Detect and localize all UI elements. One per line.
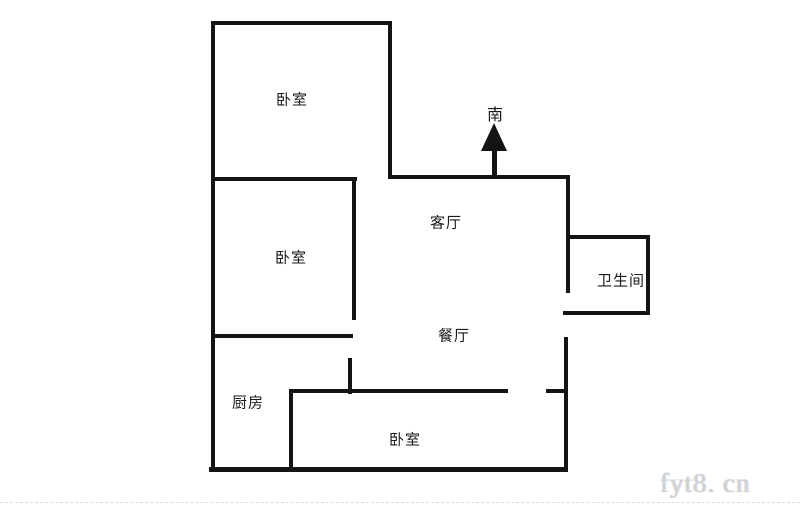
wall-outer-left <box>211 21 215 472</box>
room-label-bedroom-bottom: 卧室 <box>389 429 421 450</box>
wall-bedroom-middle-bottom <box>211 334 353 338</box>
wall-bedroom-bottom-left <box>289 389 293 470</box>
wall-right-upper <box>566 175 570 293</box>
room-label-kitchen: 厨房 <box>232 392 264 413</box>
south-arrow-icon <box>481 123 507 151</box>
wall-bedroom-middle-right <box>352 177 356 320</box>
room-label-bathroom: 卫生间 <box>597 270 645 291</box>
room-label-living-room: 客厅 <box>430 212 462 233</box>
wall-living-room-top <box>388 175 570 179</box>
wall-right-lower <box>564 337 568 472</box>
wall-bathroom-top <box>566 235 650 239</box>
wall-bedroom-bottom-top-left <box>289 389 508 393</box>
wall-outer-bottom <box>209 467 568 472</box>
floor-plan-canvas: 卧室 卧室 客厅 卫生间 餐厅 厨房 卧室 南 fyt8. cn <box>0 0 800 510</box>
room-label-bedroom-top: 卧室 <box>276 89 308 110</box>
room-label-bedroom-middle: 卧室 <box>275 247 307 268</box>
south-arrow-shaft <box>492 149 497 177</box>
wall-bedroom-divider <box>211 177 357 181</box>
watermark-text: fyt8. cn <box>660 468 750 499</box>
room-label-dining-room: 餐厅 <box>438 325 470 346</box>
wall-bedroom-top-right <box>388 21 392 179</box>
wall-bathroom-bottom <box>563 311 650 315</box>
wall-bathroom-right <box>646 235 650 315</box>
wall-outer-top <box>211 21 392 25</box>
compass-south-label: 南 <box>487 101 503 125</box>
wall-bedroom-bottom-top-right <box>546 389 568 393</box>
bottom-edge-artifact <box>0 502 800 503</box>
